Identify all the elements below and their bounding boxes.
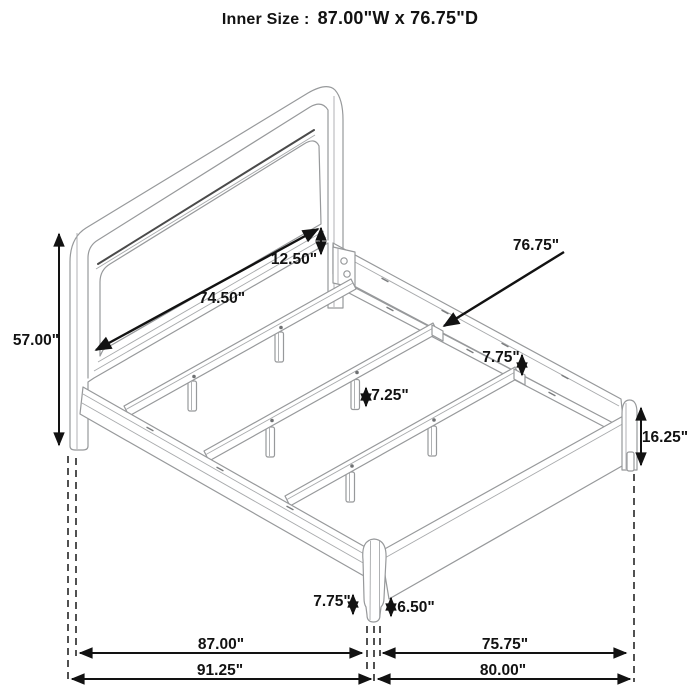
- dim-label-headboard-height: 57.00": [13, 332, 59, 349]
- dim-label-support-leg-height: 7.25": [371, 387, 409, 404]
- dim-label-overall-depth: 80.00": [480, 662, 526, 679]
- dim-label-footboard-height: 16.25": [642, 429, 688, 446]
- slat-support-leg: [346, 472, 355, 502]
- leg-tab: [627, 452, 634, 471]
- slat-support-leg: [275, 332, 284, 362]
- slat-support-leg: [188, 381, 197, 411]
- dim-label-panel-gap: 12.50": [271, 251, 317, 268]
- slat-support-leg: [351, 380, 360, 410]
- footboard: [381, 415, 629, 599]
- headboard: [70, 87, 343, 450]
- slat-support-leg: [266, 427, 275, 457]
- slat-support-leg: [428, 426, 437, 456]
- dim-label-inner-width: 87.00": [198, 636, 244, 653]
- bed-frame-isometric-drawing: 12.50" 74.50" 76.75" 57.00" 7.75" 7.25" …: [0, 0, 700, 700]
- dim-label-leg-exposed-height: 6.50": [397, 599, 435, 616]
- dim-label-overall-width: 91.25": [197, 662, 243, 679]
- leader-arrow-slat-depth: [444, 252, 564, 326]
- dim-label-inner-depth: 75.75": [482, 636, 528, 653]
- right-rear-leg: [622, 400, 637, 471]
- dim-label-headboard-inner-width: 74.50": [199, 290, 245, 307]
- dim-label-front-leg-height: 7.75": [313, 593, 351, 610]
- dim-label-slat-depth: 76.75": [513, 237, 559, 254]
- dim-label-cleat-height: 7.75": [482, 349, 520, 366]
- dimension-diagram-page: Inner Size : 87.00"W x 76.75"D: [0, 0, 700, 700]
- front-leg: [363, 539, 386, 622]
